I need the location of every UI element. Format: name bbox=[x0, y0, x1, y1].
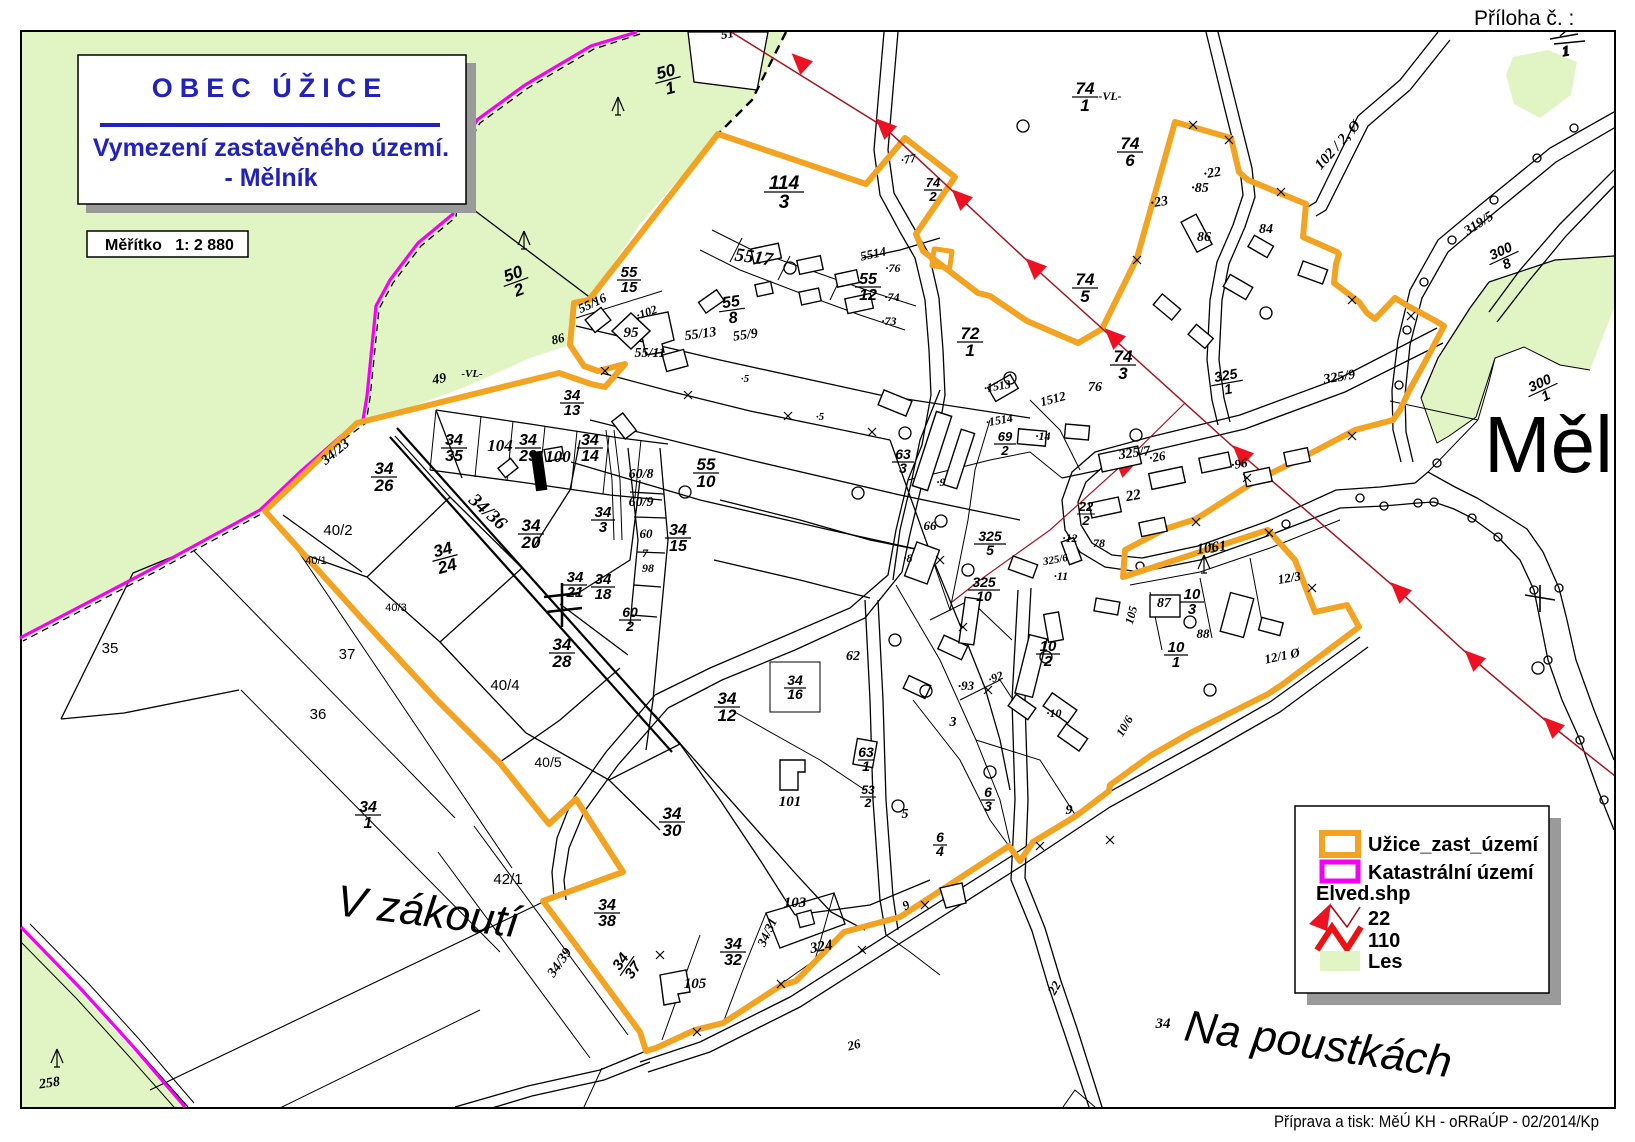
svg-text:·85: ·85 bbox=[1191, 181, 1209, 196]
svg-text:28: 28 bbox=[552, 652, 572, 671]
svg-text:15: 15 bbox=[669, 538, 688, 555]
svg-text:Příprava a tisk: MěÚ KH - oRRa: Příprava a tisk: MěÚ KH - oRRaÚP - 02/20… bbox=[1274, 1112, 1599, 1131]
svg-text:35: 35 bbox=[102, 640, 119, 657]
svg-text:·9: ·9 bbox=[937, 475, 946, 489]
svg-text:·76: ·76 bbox=[886, 261, 901, 275]
svg-text:2: 2 bbox=[864, 796, 872, 810]
svg-text:20: 20 bbox=[521, 533, 541, 552]
svg-text:40/4: 40/4 bbox=[490, 677, 519, 694]
svg-text:258: 258 bbox=[37, 1075, 61, 1093]
svg-text:49: 49 bbox=[430, 371, 447, 388]
svg-text:60: 60 bbox=[640, 526, 654, 541]
svg-text:4: 4 bbox=[935, 843, 944, 859]
svg-text:98: 98 bbox=[642, 561, 654, 575]
svg-text:2: 2 bbox=[928, 189, 937, 204]
svg-text:9: 9 bbox=[1066, 803, 1073, 818]
svg-text:84: 84 bbox=[1259, 222, 1273, 237]
svg-text:·8: ·8 bbox=[904, 551, 913, 565]
svg-text:-VL-: -VL- bbox=[461, 368, 483, 380]
svg-text:5: 5 bbox=[1080, 287, 1090, 306]
svg-text:40/2: 40/2 bbox=[323, 522, 352, 539]
svg-text:3: 3 bbox=[899, 460, 907, 476]
svg-text:3: 3 bbox=[949, 715, 957, 730]
svg-text:2: 2 bbox=[625, 618, 634, 634]
svg-text:34: 34 bbox=[724, 936, 742, 953]
svg-text:110: 110 bbox=[1368, 930, 1400, 952]
svg-text:2: 2 bbox=[1081, 513, 1090, 528]
svg-text:-VL-: -VL- bbox=[1098, 89, 1121, 103]
svg-text:104: 104 bbox=[487, 436, 513, 455]
svg-text:·5: ·5 bbox=[816, 411, 825, 423]
svg-text:22: 22 bbox=[1078, 499, 1094, 514]
svg-text:7: 7 bbox=[642, 546, 649, 560]
svg-text:21: 21 bbox=[566, 584, 584, 601]
svg-text:·12: ·12 bbox=[1063, 531, 1078, 545]
svg-text:74: 74 bbox=[926, 175, 941, 190]
svg-text:86: 86 bbox=[1197, 230, 1211, 245]
svg-text:29: 29 bbox=[518, 448, 537, 465]
svg-text:22: 22 bbox=[1368, 908, 1390, 930]
svg-text:35: 35 bbox=[445, 448, 464, 465]
svg-text:·14: ·14 bbox=[1036, 429, 1051, 443]
svg-text:22: 22 bbox=[1124, 487, 1143, 506]
svg-text:Les: Les bbox=[1368, 951, 1402, 973]
svg-text:1: 1 bbox=[862, 758, 870, 774]
svg-text:1: 1 bbox=[965, 341, 974, 360]
svg-text:42/1: 42/1 bbox=[493, 871, 522, 888]
svg-text:100: 100 bbox=[545, 447, 571, 466]
svg-text:34: 34 bbox=[445, 432, 463, 449]
svg-text:·73: ·73 bbox=[882, 314, 897, 328]
svg-text:Elved.shp: Elved.shp bbox=[1316, 883, 1410, 905]
svg-text:10: 10 bbox=[697, 472, 716, 491]
svg-text:·96: ·96 bbox=[1230, 455, 1249, 473]
svg-text:34: 34 bbox=[359, 799, 377, 816]
svg-text:3: 3 bbox=[1118, 364, 1128, 383]
svg-text:·11: ·11 bbox=[1054, 569, 1068, 583]
svg-text:6: 6 bbox=[1125, 151, 1135, 170]
svg-text:Užice_zast_území: Užice_zast_území bbox=[1368, 834, 1540, 856]
svg-text:32: 32 bbox=[724, 952, 742, 969]
svg-text:55/11: 55/11 bbox=[634, 346, 665, 361]
svg-text:62: 62 bbox=[846, 649, 860, 664]
svg-text:34: 34 bbox=[669, 522, 687, 539]
svg-text:34: 34 bbox=[598, 897, 616, 914]
svg-text:·74: ·74 bbox=[885, 290, 900, 304]
svg-text:·10: ·10 bbox=[1047, 706, 1062, 720]
svg-text:3: 3 bbox=[984, 798, 992, 814]
svg-text:18: 18 bbox=[595, 586, 612, 603]
svg-text:53: 53 bbox=[861, 783, 875, 797]
svg-text:36: 36 bbox=[310, 706, 327, 723]
svg-text:Mělník: Mělník bbox=[1484, 400, 1635, 489]
svg-text:Vymezení zastavěného území.: Vymezení zastavěného území. bbox=[93, 134, 449, 162]
svg-text:55: 55 bbox=[859, 271, 878, 288]
svg-text:40/1: 40/1 bbox=[305, 555, 326, 567]
svg-text:·93: ·93 bbox=[958, 678, 975, 693]
svg-text:88: 88 bbox=[1197, 626, 1211, 641]
svg-text:105: 105 bbox=[684, 976, 707, 992]
svg-text:34: 34 bbox=[1155, 1016, 1172, 1032]
svg-text:37: 37 bbox=[339, 646, 356, 663]
svg-text:13: 13 bbox=[564, 402, 581, 419]
svg-text:1: 1 bbox=[1172, 654, 1180, 671]
svg-text:1: 1 bbox=[364, 815, 373, 832]
svg-text:78: 78 bbox=[1093, 536, 1105, 550]
svg-text:16: 16 bbox=[787, 686, 803, 702]
svg-text:Měřítko 1: 2 880: Měřítko 1: 2 880 bbox=[105, 237, 234, 254]
svg-text:2: 2 bbox=[1000, 443, 1009, 458]
svg-text:87: 87 bbox=[1157, 596, 1172, 611]
svg-text:69: 69 bbox=[998, 429, 1013, 444]
svg-text:1: 1 bbox=[1080, 96, 1089, 115]
svg-text:76: 76 bbox=[1088, 380, 1102, 395]
svg-text:OBEC ÚŽICE: OBEC ÚŽICE bbox=[152, 72, 389, 103]
svg-text:101: 101 bbox=[779, 794, 802, 810]
svg-text:60/8: 60/8 bbox=[629, 467, 654, 482]
svg-text:·22: ·22 bbox=[1202, 165, 1222, 183]
svg-text:5: 5 bbox=[986, 542, 994, 558]
svg-text:3: 3 bbox=[599, 519, 608, 536]
svg-text:103: 103 bbox=[784, 895, 807, 911]
svg-text:30: 30 bbox=[663, 821, 682, 840]
svg-text:60/9: 60/9 bbox=[629, 495, 654, 510]
svg-text:40/3: 40/3 bbox=[385, 602, 406, 614]
svg-text:3: 3 bbox=[779, 192, 790, 213]
svg-text:Příloha č. :: Příloha č. : bbox=[1474, 7, 1574, 30]
svg-text:95: 95 bbox=[624, 325, 640, 341]
svg-text:- Mělník: - Mělník bbox=[224, 164, 317, 192]
svg-text:26: 26 bbox=[374, 476, 394, 495]
svg-text:114: 114 bbox=[769, 173, 800, 194]
svg-text:·5: ·5 bbox=[741, 373, 750, 385]
svg-text:40/5: 40/5 bbox=[534, 754, 561, 770]
svg-text:38: 38 bbox=[598, 913, 616, 930]
svg-text:·23: ·23 bbox=[1149, 194, 1169, 212]
svg-text:14: 14 bbox=[581, 448, 599, 465]
svg-text:Katastrální území: Katastrální území bbox=[1368, 862, 1535, 884]
svg-text:10: 10 bbox=[976, 588, 992, 604]
svg-text:34: 34 bbox=[519, 432, 537, 449]
svg-text:15: 15 bbox=[621, 279, 638, 296]
svg-text:12: 12 bbox=[718, 706, 737, 725]
svg-text:34: 34 bbox=[581, 432, 599, 449]
svg-text:12: 12 bbox=[859, 287, 877, 304]
